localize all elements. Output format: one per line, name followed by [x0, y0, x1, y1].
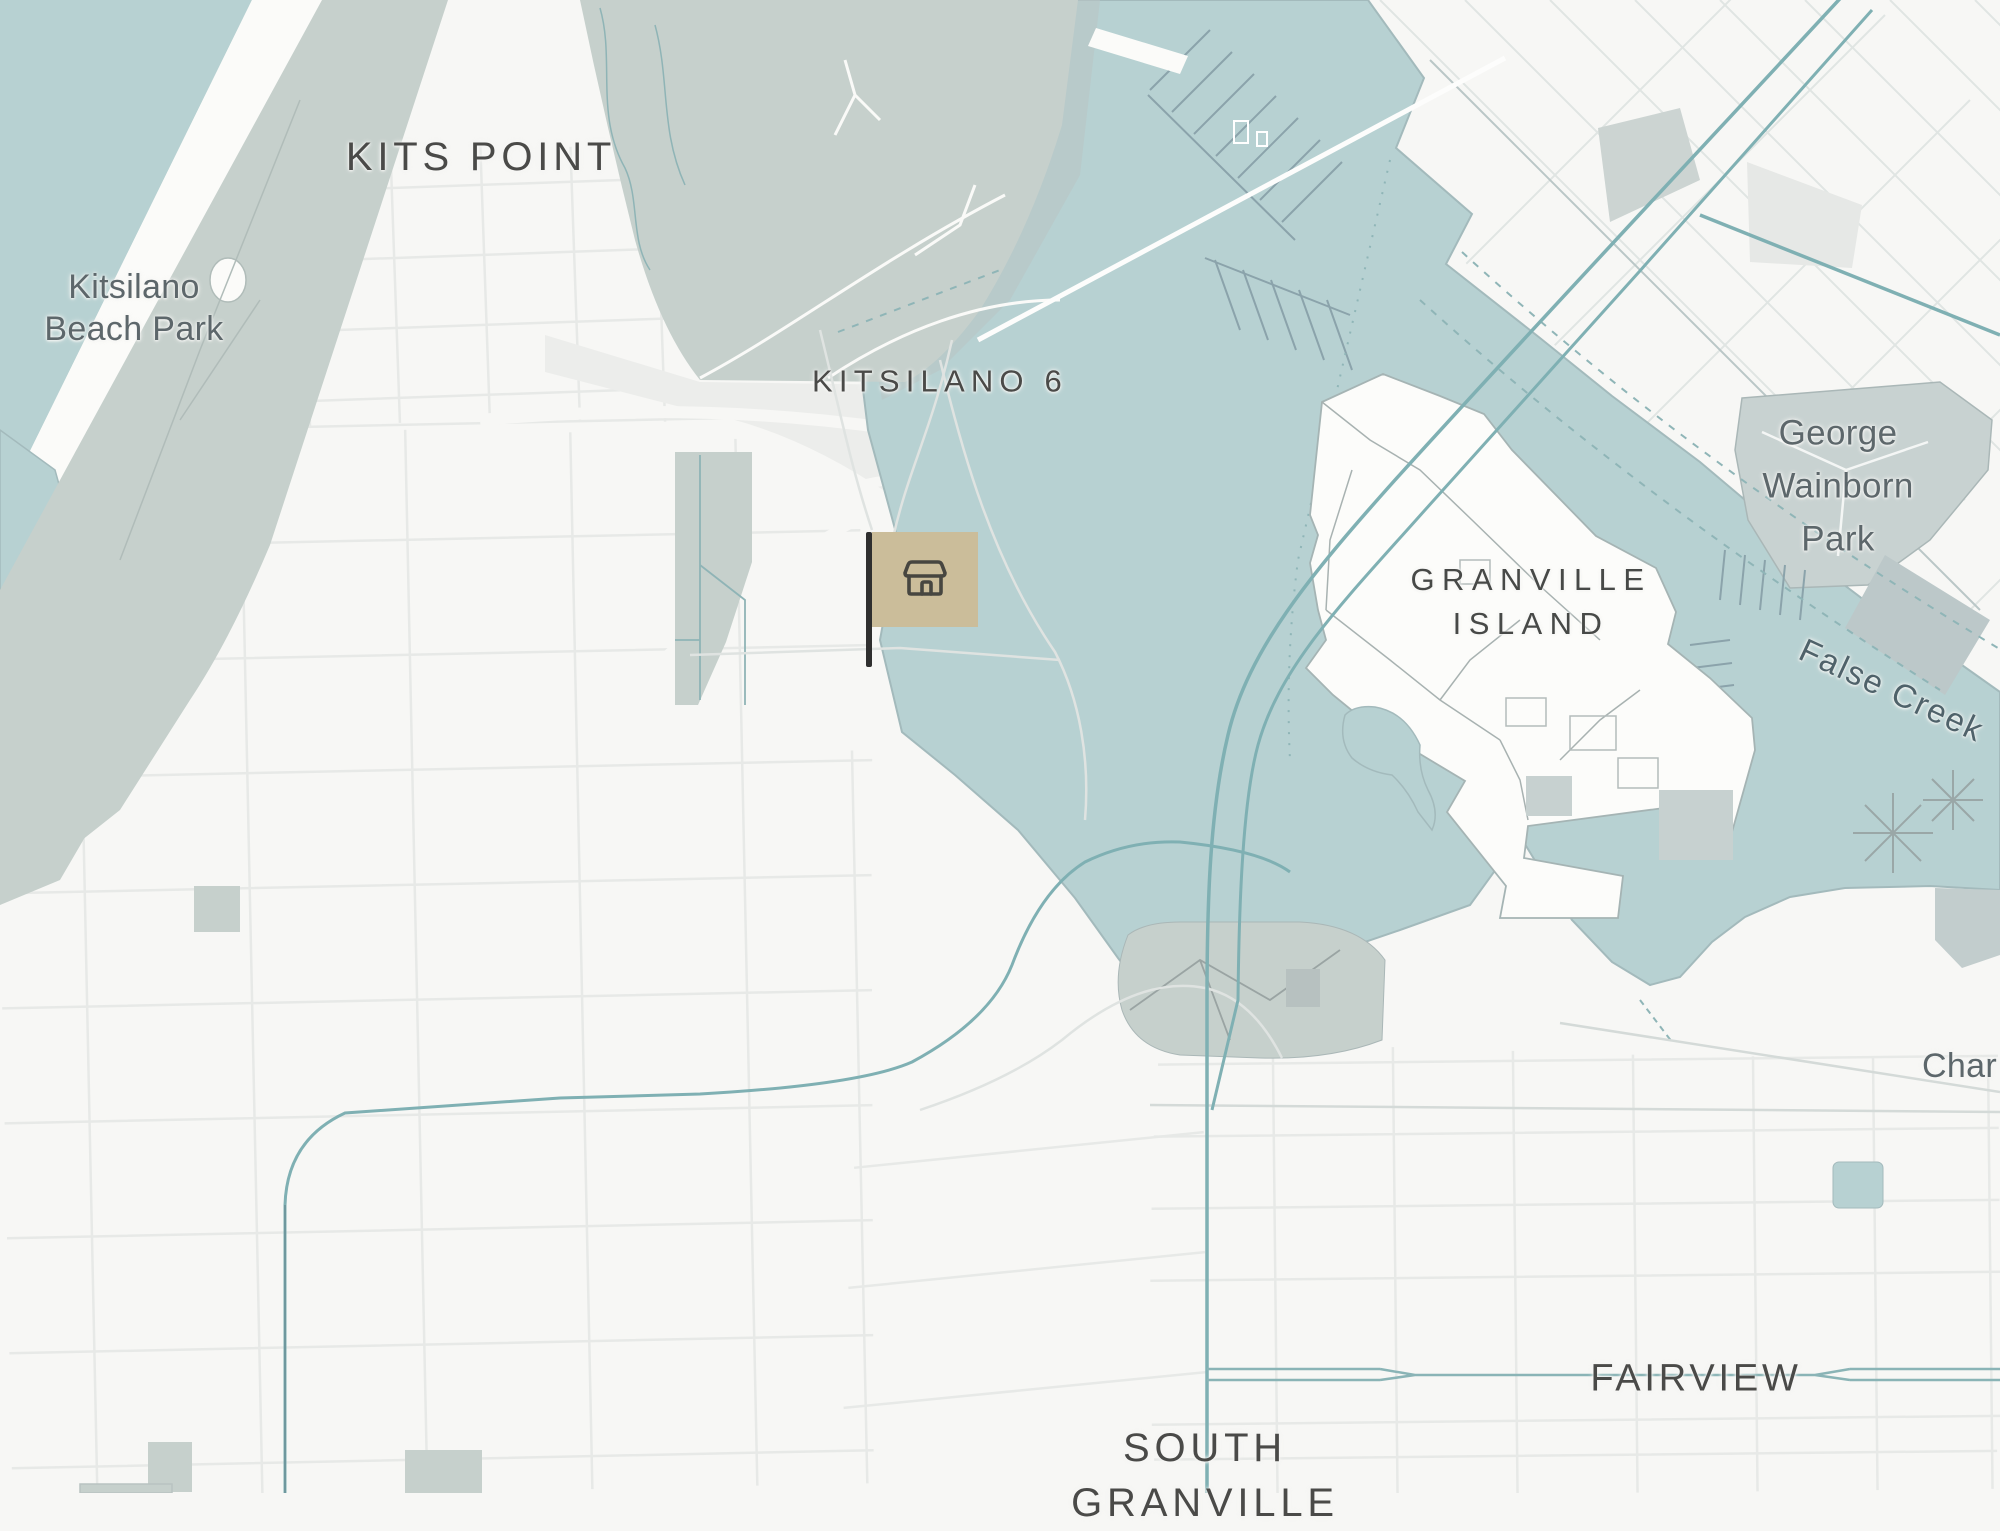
street-grid-fairview [840, 1036, 2000, 1493]
broadway-route [1207, 1369, 2000, 1380]
charleson-pond [1833, 1162, 1883, 1208]
map-canvas[interactable] [0, 0, 2000, 1493]
property-marker[interactable] [866, 532, 978, 667]
pier-slab-2 [1935, 888, 2000, 968]
marker-flag [872, 532, 978, 627]
storefront-icon [901, 556, 949, 604]
map-viewport[interactable]: KITS POINT Kitsilano Beach Park KITSILAN… [0, 0, 2000, 1493]
